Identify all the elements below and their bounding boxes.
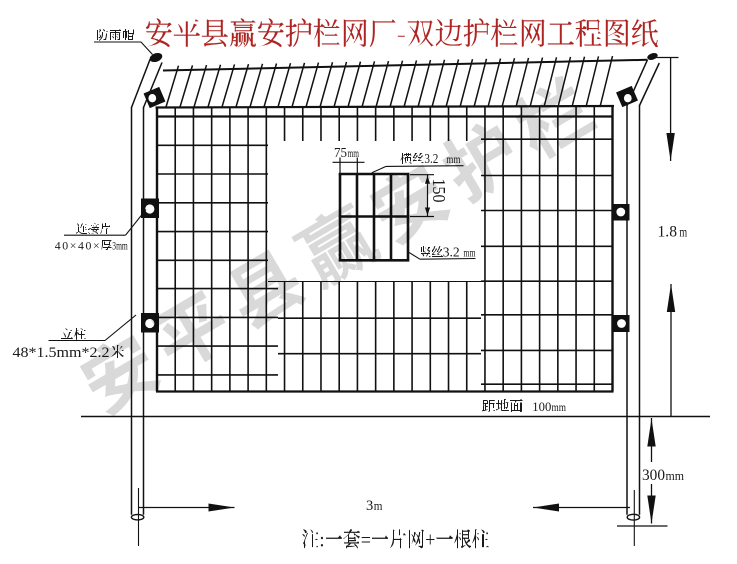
svg-text:75: 75 (334, 146, 347, 161)
svg-text:3.2: 3.2 (424, 151, 438, 166)
svg-text:3mm: 3mm (112, 238, 128, 252)
svg-text:mm: mm (552, 400, 567, 414)
svg-text:m: m (374, 498, 383, 513)
svg-text:3: 3 (366, 498, 373, 514)
svg-text:100: 100 (532, 399, 551, 414)
svg-text:300: 300 (642, 467, 665, 484)
svg-text:mm: mm (463, 247, 475, 259)
svg-text::: : (319, 529, 324, 552)
svg-text:m: m (679, 225, 687, 240)
svg-text:mm: mm (348, 146, 360, 160)
svg-text:1.8: 1.8 (658, 224, 678, 241)
svg-text:mm: mm (666, 468, 685, 483)
svg-text:=: = (361, 529, 371, 552)
svg-text:3.2: 3.2 (443, 244, 460, 259)
svg-text:+: + (425, 529, 435, 552)
svg-text:40×40×: 40×40× (55, 238, 100, 252)
